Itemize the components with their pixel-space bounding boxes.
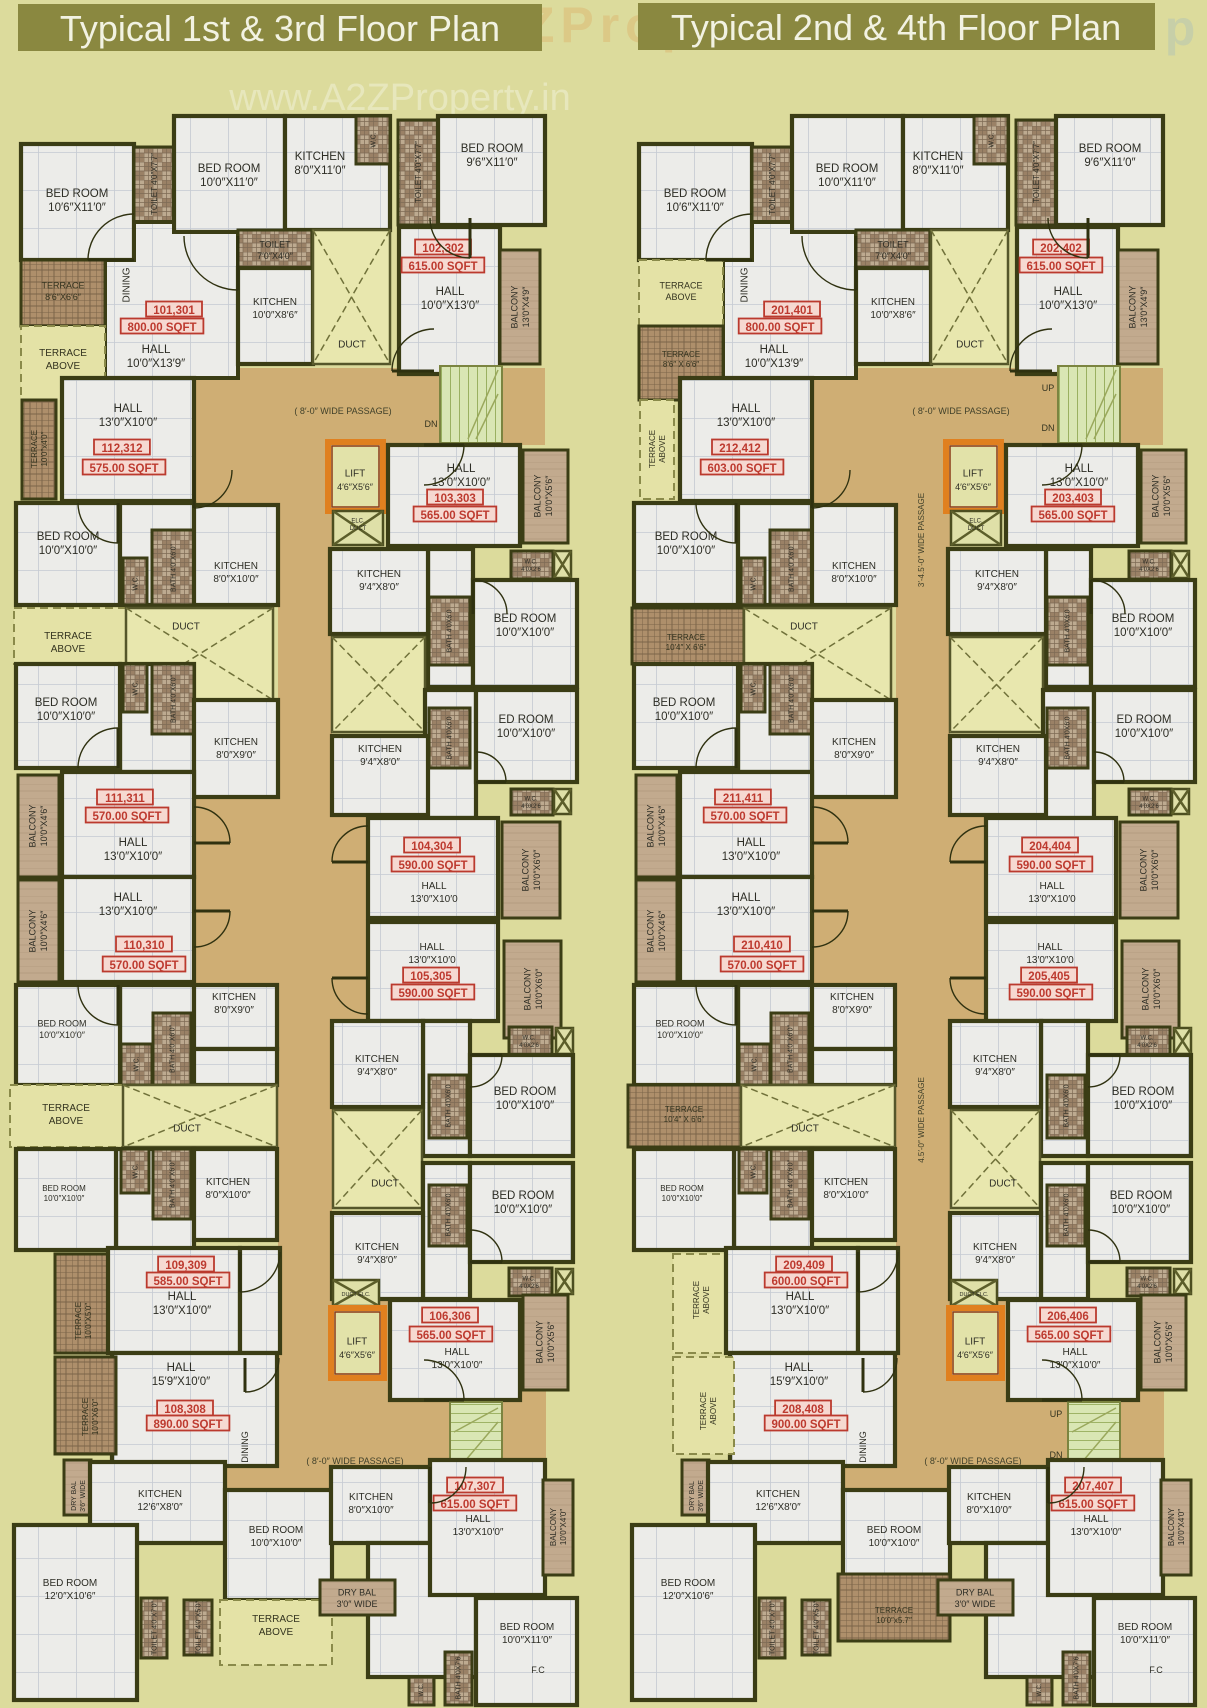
svg-text:DN: DN: [1042, 423, 1055, 433]
svg-text:TERRACEABOVE: TERRACEABOVE: [659, 281, 702, 302]
svg-text:112,312: 112,312: [102, 443, 143, 455]
svg-text:204,404: 204,404: [1029, 841, 1071, 853]
svg-text:4.5′-0″ WIDE PASSAGE: 4.5′-0″ WIDE PASSAGE: [917, 1077, 926, 1163]
svg-text:BATH 4′0″X6′0″: BATH 4′0″X6′0″: [788, 675, 795, 723]
svg-text:565.00 SQFT: 565.00 SQFT: [420, 510, 489, 522]
svg-text:BALCONY10′0″X6′0″: BALCONY10′0″X6′0″: [1139, 848, 1160, 891]
svg-text:590.00 SQFT: 590.00 SQFT: [1016, 860, 1085, 872]
svg-text:KITCHEN10′0″X8′6″: KITCHEN10′0″X8′6″: [870, 297, 916, 321]
svg-text:202,402: 202,402: [1040, 243, 1082, 255]
svg-text:BATH 4′0X7′6: BATH 4′0X7′6: [1073, 1656, 1080, 1699]
svg-text:DUCT: DUCT: [371, 1179, 399, 1190]
svg-text:BATH 4′0″X6′0″: BATH 4′0″X6′0″: [788, 544, 795, 592]
svg-text:BATH 4′0X6′0: BATH 4′0X6′0: [1064, 609, 1071, 652]
svg-text:TERRACE8′6″ X 6′6″: TERRACE8′6″ X 6′6″: [662, 350, 700, 369]
svg-text:BALCONY10′0″X4′6″: BALCONY10′0″X4′6″: [28, 909, 49, 952]
svg-text:BATH 4′0X6′0: BATH 4′0X6′0: [1064, 716, 1071, 759]
svg-text:TERRACEABOVE: TERRACEABOVE: [44, 631, 92, 655]
svg-text:DN: DN: [1050, 1450, 1063, 1460]
svg-text:KITCHEN9′4″X8′0″: KITCHEN9′4″X8′0″: [355, 1054, 399, 1078]
svg-text:BALCONY10′0″X4′6″: BALCONY10′0″X4′6″: [646, 909, 667, 952]
svg-text:BATH 4′0X6′0: BATH 4′0X6′0: [1063, 1084, 1070, 1127]
svg-text:TERRACE10′4″ X 6′6″: TERRACE10′4″ X 6′6″: [664, 1105, 705, 1124]
svg-text:575.00 SQFT: 575.00 SQFT: [89, 463, 158, 475]
svg-text:800.00 SQFT: 800.00 SQFT: [127, 322, 196, 334]
svg-text:KITCHEN9′4″X8′0″: KITCHEN9′4″X8′0″: [973, 1054, 1017, 1078]
svg-text:BALCONY10′0″X5′6″: BALCONY10′0″X5′6″: [1151, 474, 1172, 517]
svg-text:KITCHEN9′4″X8′0″: KITCHEN9′4″X8′0″: [976, 744, 1020, 768]
svg-text:BED ROOM10′0″X10′0″: BED ROOM10′0″X10′0″: [249, 1525, 303, 1549]
svg-text:LIFT: LIFT: [965, 1337, 986, 1348]
svg-text:BATH 4′0″X6′0″: BATH 4′0″X6′0″: [170, 675, 177, 723]
svg-text:DRY BAL3′0″ WIDE: DRY BAL3′0″ WIDE: [955, 1588, 996, 1609]
svg-text:BED ROOM10′0″X11′0″: BED ROOM10′0″X11′0″: [500, 1622, 554, 1646]
svg-text:TERRACE8′6″X6′6″: TERRACE8′6″X6′6″: [41, 281, 84, 302]
svg-text:KITCHEN12′6″X8′0″: KITCHEN12′6″X8′0″: [755, 1489, 801, 1513]
svg-text:BATH 4′0X6′0: BATH 4′0X6′0: [445, 1193, 452, 1236]
svg-text:103,303: 103,303: [434, 493, 476, 505]
svg-text:TERRACE10′0″x5.7″: TERRACE10′0″x5.7″: [875, 1606, 913, 1625]
svg-text:BATH 4′0X6′0: BATH 4′0X6′0: [446, 609, 453, 652]
svg-text:TERRACEABOVE: TERRACEABOVE: [252, 1614, 300, 1638]
svg-text:KITCHEN10′0″X8′6″: KITCHEN10′0″X8′6″: [252, 297, 298, 321]
svg-text:206,406: 206,406: [1047, 1311, 1089, 1323]
svg-text:DINING: DINING: [858, 1431, 868, 1463]
svg-text:KITCHEN8′0″X10′0″: KITCHEN8′0″X10′0″: [213, 561, 259, 585]
svg-text:TOILET 4′0″X5′0″: TOILET 4′0″X5′0″: [195, 1600, 202, 1655]
svg-text:565.00 SQFT: 565.00 SQFT: [1038, 510, 1107, 522]
svg-text:BALCONY10′0″X4′6″: BALCONY10′0″X4′6″: [646, 804, 667, 847]
svg-text:KITCHEN9′4″X8′0″: KITCHEN9′4″X8′0″: [355, 1242, 399, 1266]
svg-text:890.00 SQFT: 890.00 SQFT: [153, 1419, 222, 1431]
svg-text:615.00 SQFT: 615.00 SQFT: [440, 1499, 509, 1511]
svg-text:BATH 4′0″X6′0″: BATH 4′0″X6′0″: [787, 1025, 794, 1073]
svg-text:570.00 SQFT: 570.00 SQFT: [92, 811, 161, 823]
svg-text:LIFT: LIFT: [963, 469, 984, 480]
svg-text:4′6″X5′6″: 4′6″X5′6″: [339, 1350, 376, 1360]
svg-text:TOILET 4′0″X7′7″: TOILET 4′0″X7′7″: [414, 141, 423, 203]
svg-text:TERRACE10′0″x4′0″: TERRACE10′0″x4′0″: [30, 430, 49, 468]
svg-text:KITCHEN9′4″X8′0″: KITCHEN9′4″X8′0″: [357, 569, 401, 593]
svg-text:4′6″X5′6″: 4′6″X5′6″: [957, 1350, 994, 1360]
svg-text:106,306: 106,306: [429, 1311, 471, 1323]
svg-text:W.C.: W.C.: [750, 1163, 757, 1178]
svg-text:101,301: 101,301: [153, 305, 195, 317]
svg-text:208,408: 208,408: [782, 1404, 824, 1416]
svg-text:DUCT: DUCT: [172, 622, 200, 633]
svg-text:BALCONY10′0″X6′0″: BALCONY10′0″X6′0″: [521, 848, 542, 891]
svg-text:KITCHEN8′0″X10′0″: KITCHEN8′0″X10′0″: [205, 1177, 251, 1201]
svg-text:( 8′-0″ WIDE PASSAGE): ( 8′-0″ WIDE PASSAGE): [924, 1456, 1021, 1466]
svg-text:TERRACEABOVE: TERRACEABOVE: [692, 1281, 711, 1319]
svg-text:BALCONY10′0″X5′6″: BALCONY10′0″X5′6″: [533, 474, 554, 517]
svg-text:615.00 SQFT: 615.00 SQFT: [1026, 261, 1095, 273]
svg-text:BALCONY10′0″X4′6″: BALCONY10′0″X4′6″: [28, 804, 49, 847]
svg-text:W.C.: W.C.: [132, 1163, 139, 1178]
svg-text:W.C.: W.C.: [132, 680, 139, 695]
svg-text:210,410: 210,410: [741, 940, 783, 952]
svg-text:DINING: DINING: [240, 1431, 250, 1463]
svg-text:F.C: F.C: [1149, 1665, 1163, 1675]
svg-text:BALCONY13′0″X4′9″: BALCONY13′0″X4′9″: [510, 285, 531, 328]
svg-text:DRY BAL3′6″ WIDE: DRY BAL3′6″ WIDE: [71, 1480, 87, 1512]
svg-text:W.C.: W.C.: [750, 575, 757, 590]
svg-text:615.00 SQFT: 615.00 SQFT: [408, 261, 477, 273]
svg-text:105,305: 105,305: [410, 971, 452, 983]
svg-text:4′6″X5′6″: 4′6″X5′6″: [955, 482, 992, 492]
svg-text:KITCHEN8′0″X10′0″: KITCHEN8′0″X10′0″: [823, 1177, 869, 1201]
svg-text:BATH 4′0″X6′0″: BATH 4′0″X6′0″: [169, 1025, 176, 1073]
svg-text:BALCONY10′0″X5′6″: BALCONY10′0″X5′6″: [535, 1320, 556, 1363]
svg-text:570.00 SQFT: 570.00 SQFT: [109, 960, 178, 972]
svg-text:570.00 SQFT: 570.00 SQFT: [710, 811, 779, 823]
svg-text:TERRACEABOVE: TERRACEABOVE: [42, 1103, 90, 1127]
svg-text:ELC.DUCT: ELC.DUCT: [968, 518, 985, 532]
svg-text:800.00 SQFT: 800.00 SQFT: [745, 322, 814, 334]
svg-text:TERRACE10′4″ X 6′6″: TERRACE10′4″ X 6′6″: [666, 633, 707, 652]
svg-text:BATH 4′0X6′0: BATH 4′0X6′0: [446, 716, 453, 759]
svg-text:BED ROOM12′0″X10′6″: BED ROOM12′0″X10′6″: [43, 1578, 97, 1602]
svg-text:TERRACE10′0″X5′0″: TERRACE10′0″X5′0″: [74, 1302, 93, 1340]
svg-text:W.C.: W.C.: [988, 132, 995, 147]
svg-text:TERRACE10′0″X6′0″: TERRACE10′0″X6′0″: [81, 1398, 100, 1436]
svg-text:BED ROOM10′0″X10′0″: BED ROOM10′0″X10′0″: [655, 1019, 704, 1040]
svg-text:LIFT: LIFT: [345, 469, 366, 480]
svg-text:DUCT: DUCT: [338, 340, 366, 351]
svg-text:KITCHEN8′0″X9′0″: KITCHEN8′0″X9′0″: [830, 992, 874, 1016]
svg-text:TERRACEABOVE: TERRACEABOVE: [648, 430, 667, 468]
svg-text:TOILET7′0″X4′0″: TOILET7′0″X4′0″: [875, 240, 912, 261]
svg-text:( 8′-0″ WIDE PASSAGE): ( 8′-0″ WIDE PASSAGE): [912, 406, 1009, 416]
svg-text:BALCONY10′0″X5′6″: BALCONY10′0″X5′6″: [1153, 1320, 1174, 1363]
svg-text:BED ROOM10′0″X10′0″: BED ROOM10′0″X10′0″: [37, 1019, 86, 1040]
svg-text:( 8′-0″ WIDE PASSAGE): ( 8′-0″ WIDE PASSAGE): [306, 1456, 403, 1466]
svg-text:KITCHEN8′0″X9′0″: KITCHEN8′0″X9′0″: [832, 737, 876, 761]
svg-text:BATH 4′0X7′6: BATH 4′0X7′6: [455, 1656, 462, 1699]
svg-text:BED ROOM12′0″X10′6″: BED ROOM12′0″X10′6″: [661, 1578, 715, 1602]
svg-text:BALCONY10′0″X4′0″: BALCONY10′0″X4′0″: [1167, 1507, 1186, 1546]
svg-text:Typical 1st & 3rd Floor Plan: Typical 1st & 3rd Floor Plan: [60, 8, 500, 49]
svg-text:BATH 4′0X6′0: BATH 4′0X6′0: [445, 1084, 452, 1127]
svg-text:W.C.: W.C.: [133, 1056, 140, 1071]
svg-text:DUCT: DUCT: [790, 622, 818, 633]
svg-text:211,411: 211,411: [723, 793, 764, 805]
svg-text:201,401: 201,401: [771, 305, 813, 317]
svg-text:p: p: [1165, 0, 1196, 56]
svg-text:565.00 SQFT: 565.00 SQFT: [1034, 1330, 1103, 1342]
svg-text:BALCONY10′0″X4′0″: BALCONY10′0″X4′0″: [549, 1507, 568, 1546]
svg-text:111,311: 111,311: [105, 793, 145, 805]
svg-text:KITCHEN8′0″X10′0″: KITCHEN8′0″X10′0″: [348, 1492, 394, 1516]
svg-text:BATH 4′0″X6′0″: BATH 4′0″X6′0″: [169, 1160, 176, 1208]
svg-text:DUCT: DUCT: [956, 340, 984, 351]
svg-text:205,405: 205,405: [1028, 971, 1070, 983]
svg-text:3′-4.5′-0″ WIDE PASSAGE: 3′-4.5′-0″ WIDE PASSAGE: [917, 493, 926, 587]
svg-text:BED ROOM10′0″X10′0″: BED ROOM10′0″X10′0″: [867, 1525, 921, 1549]
svg-text:DN: DN: [425, 419, 438, 429]
svg-text:TOILET7′0″X4′0″: TOILET7′0″X4′0″: [257, 240, 294, 261]
svg-text:565.00 SQFT: 565.00 SQFT: [416, 1330, 485, 1342]
svg-text:KITCHEN9′4″X8′0″: KITCHEN9′4″X8′0″: [973, 1242, 1017, 1266]
svg-text:TOILET 4′0″X7′0″: TOILET 4′0″X7′0″: [769, 1600, 776, 1655]
svg-text:DUCT: DUCT: [989, 1179, 1017, 1190]
svg-text:104,304: 104,304: [411, 841, 453, 853]
svg-text:KITCHEN9′4″X8′0″: KITCHEN9′4″X8′0″: [358, 744, 402, 768]
svg-text:102,302: 102,302: [422, 243, 464, 255]
svg-text:W.C.: W.C.: [132, 575, 139, 590]
svg-text:203,403: 203,403: [1052, 493, 1094, 505]
svg-text:KITCHEN8′0″X9′0″: KITCHEN8′0″X9′0″: [214, 737, 258, 761]
svg-text:DUCT ELC.: DUCT ELC.: [342, 1292, 371, 1298]
svg-text:DRY BAL3′0″ WIDE: DRY BAL3′0″ WIDE: [337, 1588, 378, 1609]
svg-text:110,310: 110,310: [124, 940, 165, 952]
svg-text:UP: UP: [1042, 383, 1055, 393]
svg-text:590.00 SQFT: 590.00 SQFT: [1016, 988, 1085, 1000]
svg-text:DINING: DINING: [740, 267, 751, 302]
svg-text:www.A2ZProperty.in: www.A2ZProperty.in: [228, 77, 570, 119]
svg-text:ELC.DUCT: ELC.DUCT: [350, 518, 367, 532]
svg-text:W.C.: W.C.: [750, 680, 757, 695]
svg-text:TERRACEABOVE: TERRACEABOVE: [699, 1392, 718, 1430]
svg-text:TERRACEABOVE: TERRACEABOVE: [39, 348, 87, 372]
svg-text:BALCONY10′0″X6′0″: BALCONY10′0″X6′0″: [1141, 967, 1162, 1010]
svg-text:TOILET 4′0″X5′0″: TOILET 4′0″X5′0″: [813, 1600, 820, 1655]
svg-text:585.00 SQFT: 585.00 SQFT: [153, 1276, 222, 1288]
svg-text:4′6″X5′6″: 4′6″X5′6″: [337, 482, 374, 492]
svg-text:TOILET 4′0″X7′7″: TOILET 4′0″X7′7″: [1032, 141, 1041, 203]
svg-text:BATH 4′0″X6′0″: BATH 4′0″X6′0″: [787, 1160, 794, 1208]
svg-text:KITCHEN8′0″X10′0″: KITCHEN8′0″X10′0″: [966, 1492, 1012, 1516]
svg-text:570.00 SQFT: 570.00 SQFT: [727, 960, 796, 972]
svg-text:209,409: 209,409: [783, 1260, 825, 1272]
svg-text:DUCT ELC.: DUCT ELC.: [960, 1292, 989, 1298]
svg-text:DUCT: DUCT: [791, 1124, 819, 1135]
svg-text:KITCHEN12′6″X8′0″: KITCHEN12′6″X8′0″: [137, 1489, 183, 1513]
svg-text:KITCHEN8′0″X9′0″: KITCHEN8′0″X9′0″: [212, 992, 256, 1016]
svg-text:BALCONY13′0″X4′9″: BALCONY13′0″X4′9″: [1128, 285, 1149, 328]
svg-text:DUCT: DUCT: [173, 1124, 201, 1135]
svg-text:DRY BAL3′6″ WIDE: DRY BAL3′6″ WIDE: [689, 1480, 705, 1512]
svg-text:BALCONY10′0″X6′0″: BALCONY10′0″X6′0″: [523, 967, 544, 1010]
svg-text:TOILET 4′0″X7′0″: TOILET 4′0″X7′0″: [151, 1600, 158, 1655]
svg-text:590.00 SQFT: 590.00 SQFT: [398, 860, 467, 872]
svg-text:W.C.: W.C.: [370, 132, 377, 147]
svg-text:KITCHEN9′4″X8′0″: KITCHEN9′4″X8′0″: [975, 569, 1019, 593]
svg-text:W.C.: W.C.: [419, 1683, 425, 1696]
svg-text:TOILET 4′0″X7′7″: TOILET 4′0″X7′7″: [150, 153, 159, 215]
svg-text:W.C.: W.C.: [751, 1056, 758, 1071]
svg-text:LIFT: LIFT: [347, 1337, 368, 1348]
svg-text:BED ROOM10′0″X10′0″: BED ROOM10′0″X10′0″: [660, 1184, 704, 1203]
svg-text:615.00 SQFT: 615.00 SQFT: [1058, 1499, 1127, 1511]
svg-text:UP: UP: [1050, 1409, 1063, 1419]
svg-text:TOILET 4′0″X7′7″: TOILET 4′0″X7′7″: [768, 153, 777, 215]
svg-text:603.00 SQFT: 603.00 SQFT: [707, 463, 776, 475]
svg-text:F.C: F.C: [531, 1665, 545, 1675]
svg-text:BED ROOM10′0″X10′0″: BED ROOM10′0″X10′0″: [42, 1184, 86, 1203]
svg-text:W.C.: W.C.: [1037, 1683, 1043, 1696]
svg-text:900.00 SQFT: 900.00 SQFT: [771, 1419, 840, 1431]
svg-text:DINING: DINING: [122, 267, 133, 302]
svg-text:212,412: 212,412: [719, 443, 761, 455]
svg-text:108,308: 108,308: [164, 1404, 206, 1416]
svg-text:( 8′-0″ WIDE PASSAGE): ( 8′-0″ WIDE PASSAGE): [294, 406, 391, 416]
svg-text:BATH 4′0″X6′0″: BATH 4′0″X6′0″: [170, 544, 177, 592]
svg-text:600.00 SQFT: 600.00 SQFT: [771, 1276, 840, 1288]
svg-text:109,309: 109,309: [165, 1260, 207, 1272]
svg-text:Typical 2nd & 4th Floor Plan: Typical 2nd & 4th Floor Plan: [671, 7, 1121, 48]
svg-text:KITCHEN8′0″X10′0″: KITCHEN8′0″X10′0″: [831, 561, 877, 585]
svg-text:BED ROOM10′0″X11′0″: BED ROOM10′0″X11′0″: [1118, 1622, 1172, 1646]
svg-text:590.00 SQFT: 590.00 SQFT: [398, 988, 467, 1000]
svg-text:BATH 4′0X6′0: BATH 4′0X6′0: [1063, 1193, 1070, 1236]
